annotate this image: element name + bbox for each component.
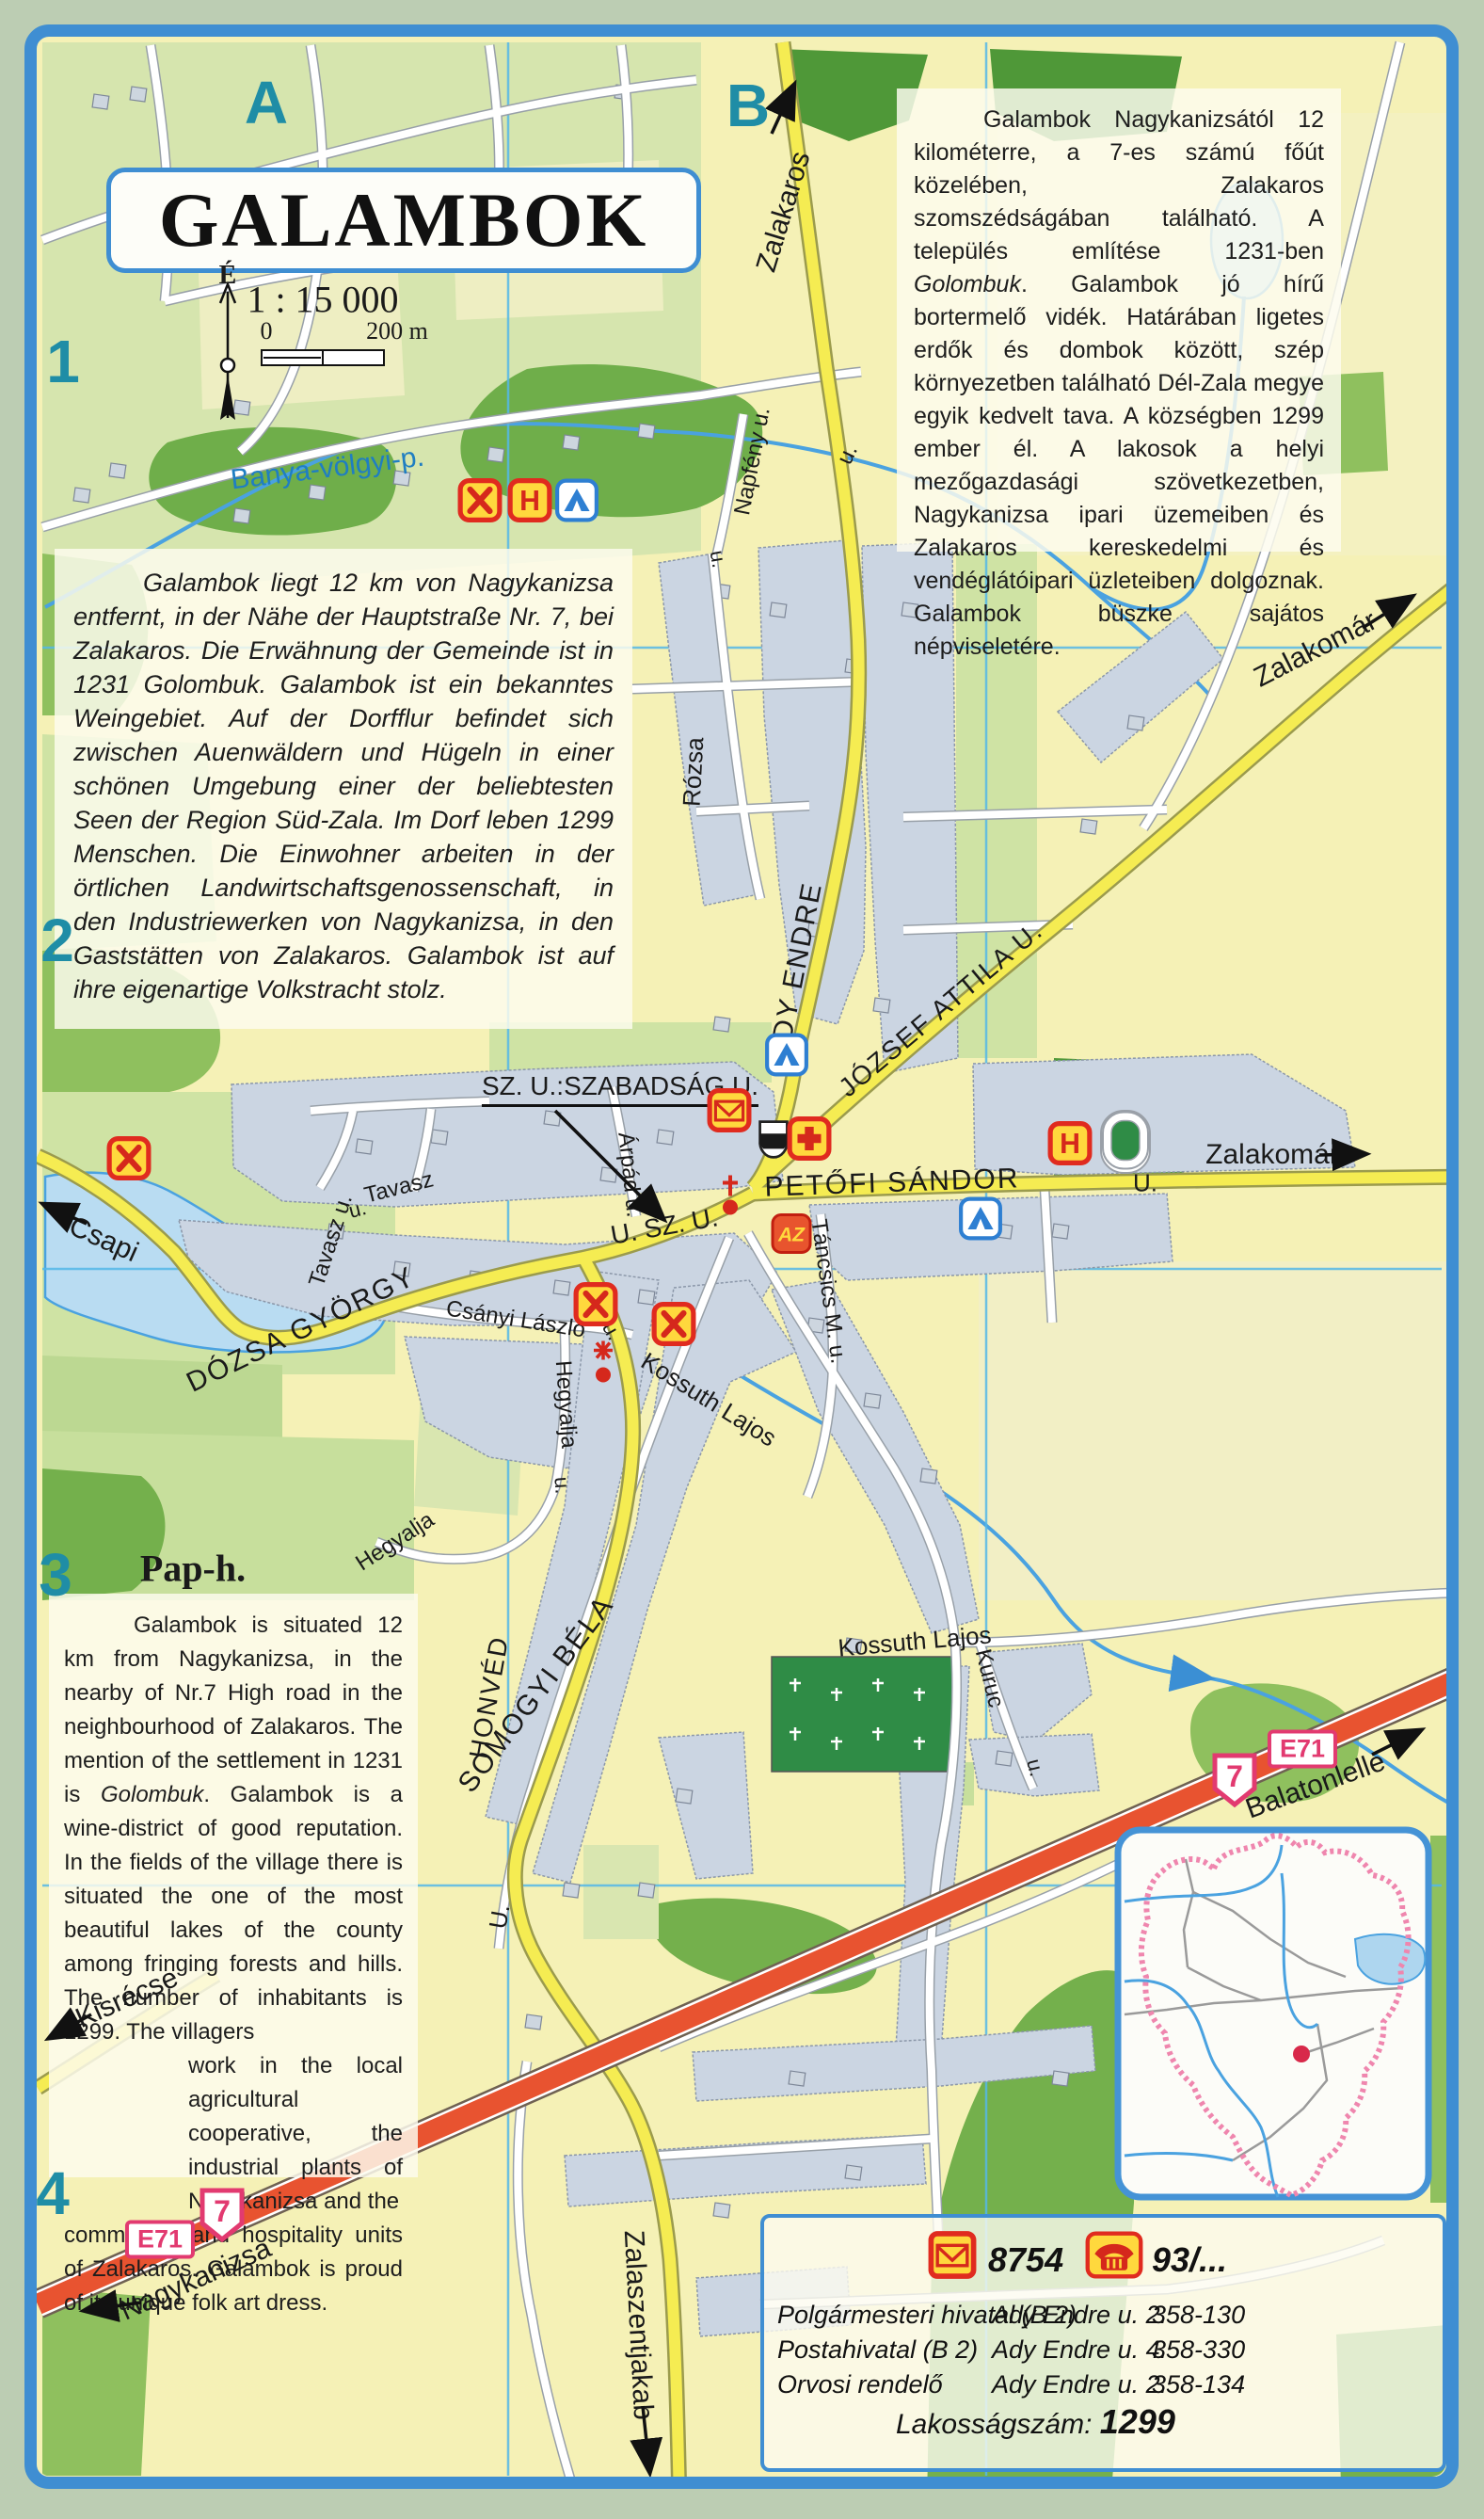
phone-icon (1085, 2232, 1143, 2284)
place-phone: 358-330 (1152, 2335, 1245, 2365)
postal-envelope-icon (928, 2231, 977, 2285)
grid-label-a: A (245, 68, 288, 137)
info-row: Postahivatal (B 2)Ady Endre u. 4.358-330 (777, 2335, 1304, 2365)
scale-end: 200 m (366, 317, 428, 345)
grid-label-2: 2 (40, 906, 74, 975)
svg-text:H: H (1060, 1129, 1080, 1160)
scale-ratio: 1 : 15 000 (247, 278, 398, 322)
svg-text:AZ: AZ (777, 1225, 806, 1246)
grid-label-3: 3 (39, 1540, 72, 1610)
phone-prefix: 93/... (1152, 2240, 1227, 2280)
restaurant-icon (573, 1282, 618, 1332)
german-text: Galambok liegt 12 km von Nagykanizsa ent… (73, 566, 614, 1006)
hotel-icon: H (507, 478, 552, 528)
road-badge-7: 7 (198, 2186, 247, 2244)
map-title: GALAMBOK (159, 176, 649, 265)
population-value: 1299 (1100, 2402, 1175, 2441)
coat-of-arms-icon (757, 1118, 790, 1166)
memorial-icon (589, 1340, 617, 1389)
camping-icon (958, 1196, 1003, 1246)
place-address: Ady Endre u. 4. (992, 2335, 1167, 2365)
place-name: Postahivatal (B 2) (777, 2335, 978, 2364)
restaurant-icon (106, 1136, 152, 1186)
post-office-icon (707, 1088, 752, 1138)
population-label: Lakosságszám: (896, 2409, 1092, 2440)
road-badge-e71: E71 (1268, 1730, 1337, 1769)
north-letter: É (219, 261, 237, 291)
svg-text:H: H (519, 486, 540, 517)
place-phone: 358-134 (1152, 2370, 1245, 2399)
info-row: Orvosi rendelőAdy Endre u. 2.358-134 (777, 2370, 1304, 2399)
population-line: Lakosságszám: 1299 (896, 2402, 1175, 2442)
map-label-u: U. (483, 1902, 516, 1932)
grid-label-b: B (726, 71, 770, 140)
camping-icon (764, 1033, 809, 1083)
grid-label-4: 4 (36, 2158, 70, 2228)
place-address: Ady Endre u. 2. (992, 2370, 1167, 2399)
road-badge-e71: E71 (125, 2221, 195, 2259)
hotel-icon: H (1047, 1121, 1093, 1171)
restaurant-icon (457, 478, 503, 528)
church-cross-icon (716, 1174, 744, 1222)
az-store-icon: AZ (771, 1213, 812, 1259)
english-description-box: Galambok is situated 12 km from Nagykani… (49, 1594, 418, 2177)
scanned-village-map-page: { "title": "GALAMBOK", "scale": {"ratio"… (0, 0, 1484, 2519)
restaurant-icon (651, 1302, 696, 1352)
camping-icon (554, 478, 599, 528)
postal-code: 8754 (988, 2240, 1063, 2280)
map-title-box: GALAMBOK (106, 168, 701, 273)
place-address: Ady Endre u. 2. (992, 2301, 1167, 2330)
hungarian-text: Galambok Nagykanizsától 12 kilométerre, … (914, 104, 1324, 664)
grid-label-1: 1 (46, 327, 80, 396)
svg-text:7: 7 (1226, 1759, 1243, 1793)
scale-zero: 0 (261, 317, 273, 345)
map-label-zalakom-r: Zalakomár (1205, 1139, 1339, 1171)
inset-county-map (1118, 1830, 1428, 2197)
english-text-part1: Galambok is situated 12 km from Nagykani… (64, 1609, 403, 2049)
map-label-u: u. (549, 1476, 574, 1495)
village-location-dot (1293, 2046, 1310, 2062)
stadium-icon (1100, 1110, 1151, 1177)
map-label-r-zsa: Rózsa (678, 736, 710, 807)
hungarian-description-box: Galambok Nagykanizsától 12 kilométerre, … (897, 88, 1341, 552)
map-label-pap-h: Pap-h. (140, 1547, 246, 1591)
map-page-frame: GALAMBOK 1 : 15 000 0 200 m É Galambok N… (24, 24, 1459, 2489)
cemetery (772, 1657, 956, 1772)
german-description-box: Galambok liegt 12 km von Nagykanizsa ent… (55, 549, 632, 1029)
scale-bar (262, 350, 384, 365)
info-row: Polgármesteri hivatal (B 2)Ady Endre u. … (777, 2301, 1304, 2330)
first-aid-icon (787, 1116, 832, 1166)
svg-text:7: 7 (214, 2194, 231, 2228)
place-name: Orvosi rendelő (777, 2370, 943, 2399)
road-badge-7: 7 (1210, 1751, 1259, 1809)
address-info-box: 8754 93/... Polgármesteri hivatal (B 2)A… (760, 2214, 1446, 2472)
place-phone: 358-130 (1152, 2301, 1245, 2330)
